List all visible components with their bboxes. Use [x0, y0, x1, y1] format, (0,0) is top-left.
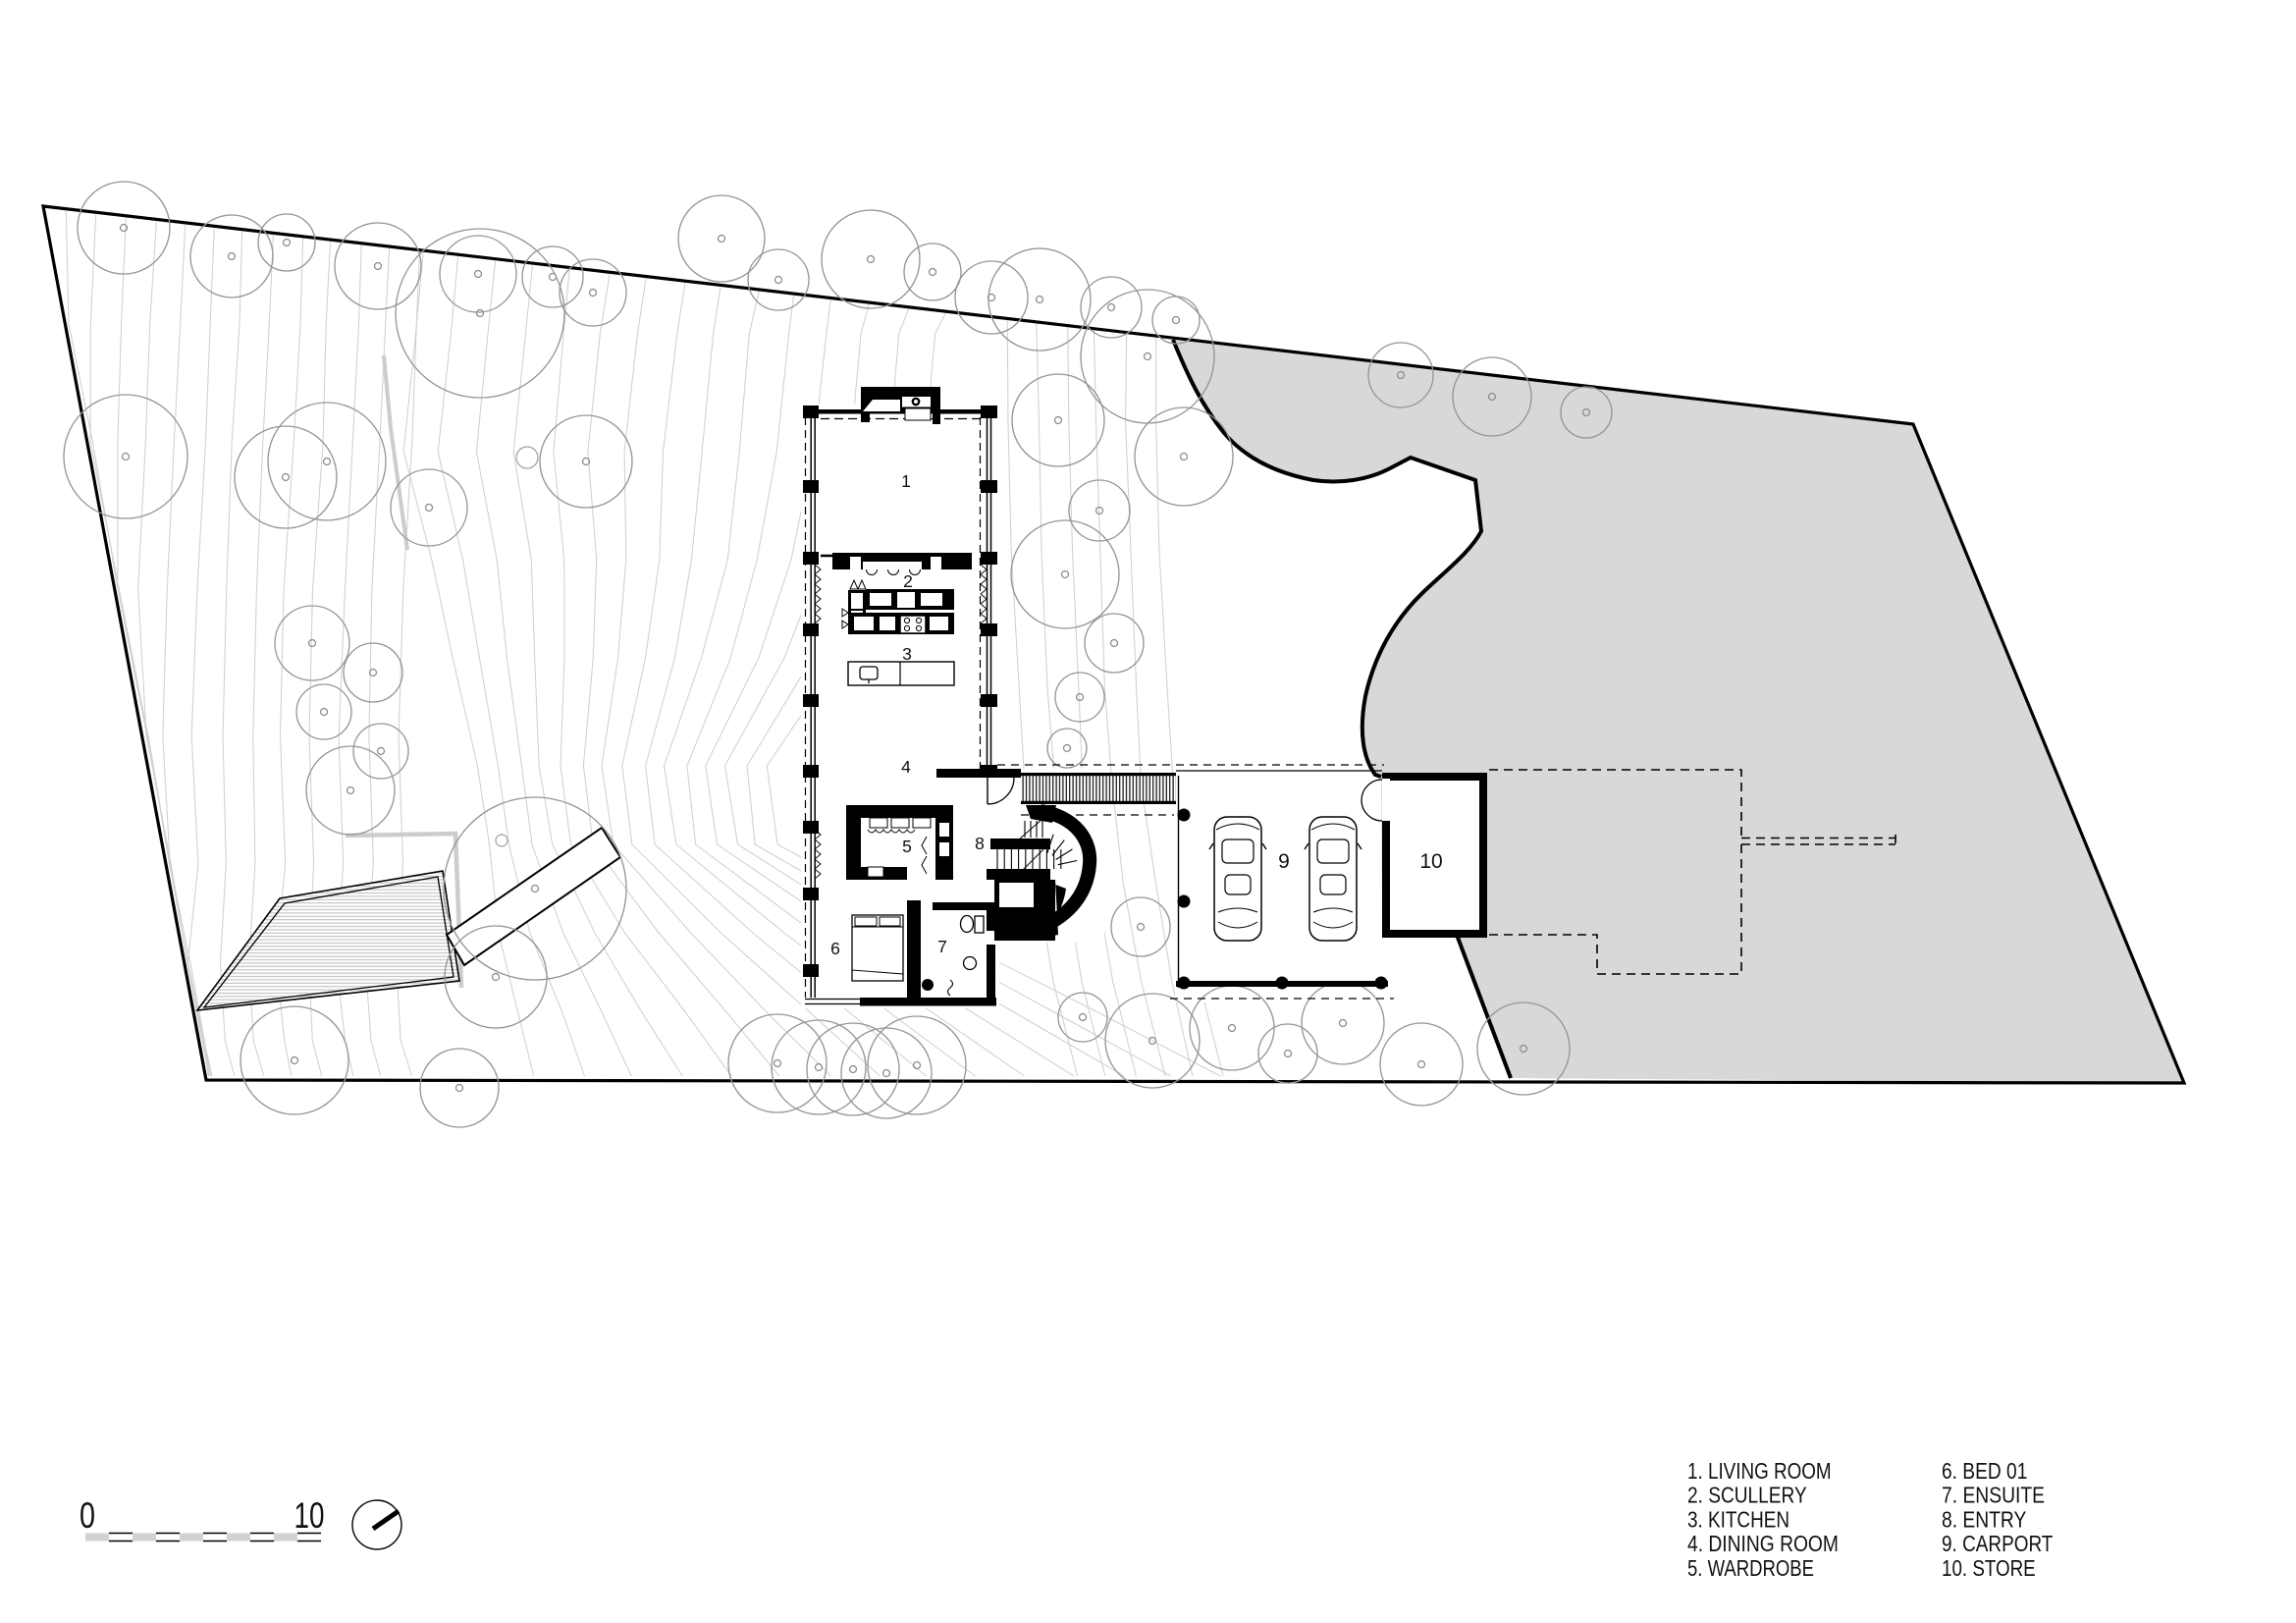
svg-text:7: 7 — [937, 937, 947, 956]
svg-text:10. STORE: 10. STORE — [1942, 1555, 2036, 1581]
svg-text:3. KITCHEN: 3. KITCHEN — [1687, 1506, 1789, 1532]
svg-text:10: 10 — [294, 1495, 325, 1536]
svg-text:2: 2 — [903, 571, 913, 591]
svg-text:5: 5 — [902, 837, 912, 856]
svg-text:5. WARDROBE: 5. WARDROBE — [1687, 1555, 1814, 1581]
svg-text:2. SCULLERY: 2. SCULLERY — [1687, 1483, 1807, 1508]
svg-text:6: 6 — [830, 939, 840, 958]
svg-text:8. ENTRY: 8. ENTRY — [1942, 1506, 2026, 1532]
svg-text:9: 9 — [1278, 850, 1290, 873]
svg-text:7. ENSUITE: 7. ENSUITE — [1942, 1483, 2045, 1508]
svg-text:9. CARPORT: 9. CARPORT — [1942, 1531, 2053, 1556]
svg-text:1. LIVING ROOM: 1. LIVING ROOM — [1687, 1458, 1832, 1484]
svg-text:4. DINING ROOM: 4. DINING ROOM — [1687, 1531, 1839, 1556]
svg-text:10: 10 — [1419, 850, 1442, 873]
svg-text:4: 4 — [901, 757, 911, 777]
svg-text:1: 1 — [901, 471, 911, 491]
svg-text:6. BED 01: 6. BED 01 — [1942, 1458, 2027, 1484]
svg-text:8: 8 — [975, 834, 985, 853]
svg-text:3: 3 — [902, 644, 912, 664]
svg-text:0: 0 — [80, 1495, 95, 1536]
